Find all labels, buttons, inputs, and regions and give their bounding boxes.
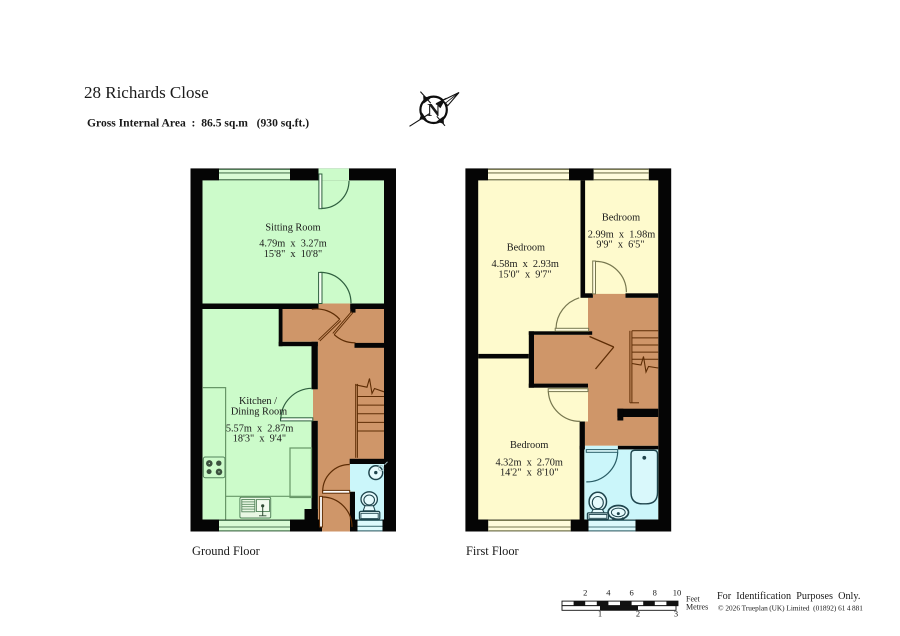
svg-text:28 Richards Close: 28 Richards Close bbox=[84, 83, 209, 102]
svg-text:15'0" x 9'7": 15'0" x 9'7" bbox=[498, 269, 551, 280]
svg-text:Ground Floor: Ground Floor bbox=[192, 544, 261, 558]
svg-text:© 2026 Trueplan (UK) Limited: © 2026 Trueplan (UK) Limited (01892) 61 … bbox=[718, 604, 863, 613]
svg-text:2: 2 bbox=[583, 588, 587, 598]
svg-text:Kitchen /: Kitchen / bbox=[239, 396, 277, 407]
svg-text:14'2" x 8'10": 14'2" x 8'10" bbox=[500, 467, 558, 478]
svg-text:Bedroom: Bedroom bbox=[507, 243, 545, 254]
svg-text:6: 6 bbox=[629, 588, 633, 598]
svg-text:Bedroom: Bedroom bbox=[510, 440, 548, 451]
svg-text:Sitting Room: Sitting Room bbox=[265, 223, 320, 234]
svg-text:1: 1 bbox=[598, 609, 602, 619]
svg-text:15'8" x 10'8": 15'8" x 10'8" bbox=[264, 249, 322, 260]
svg-text:9'9" x 6'5": 9'9" x 6'5" bbox=[596, 240, 644, 251]
svg-text:8: 8 bbox=[653, 588, 657, 598]
svg-text:10: 10 bbox=[673, 588, 682, 598]
svg-text:Gross Internal Area : 86.5 s: Gross Internal Area : 86.5 sq.m (930 sq.… bbox=[87, 117, 309, 130]
svg-text:4.79m x 3.27m: 4.79m x 3.27m bbox=[259, 239, 327, 250]
svg-text:First Floor: First Floor bbox=[466, 544, 520, 558]
svg-text:Metres: Metres bbox=[686, 603, 708, 612]
svg-text:Dining Room: Dining Room bbox=[231, 406, 287, 417]
svg-text:18'3" x 9'4": 18'3" x 9'4" bbox=[233, 434, 286, 445]
svg-text:3: 3 bbox=[674, 609, 678, 619]
svg-text:N: N bbox=[427, 100, 440, 120]
svg-text:Bedroom: Bedroom bbox=[602, 213, 640, 224]
svg-text:4: 4 bbox=[606, 588, 611, 598]
svg-text:For Identification Purposes: For Identification Purposes Only. bbox=[717, 591, 860, 602]
svg-text:2: 2 bbox=[636, 609, 640, 619]
